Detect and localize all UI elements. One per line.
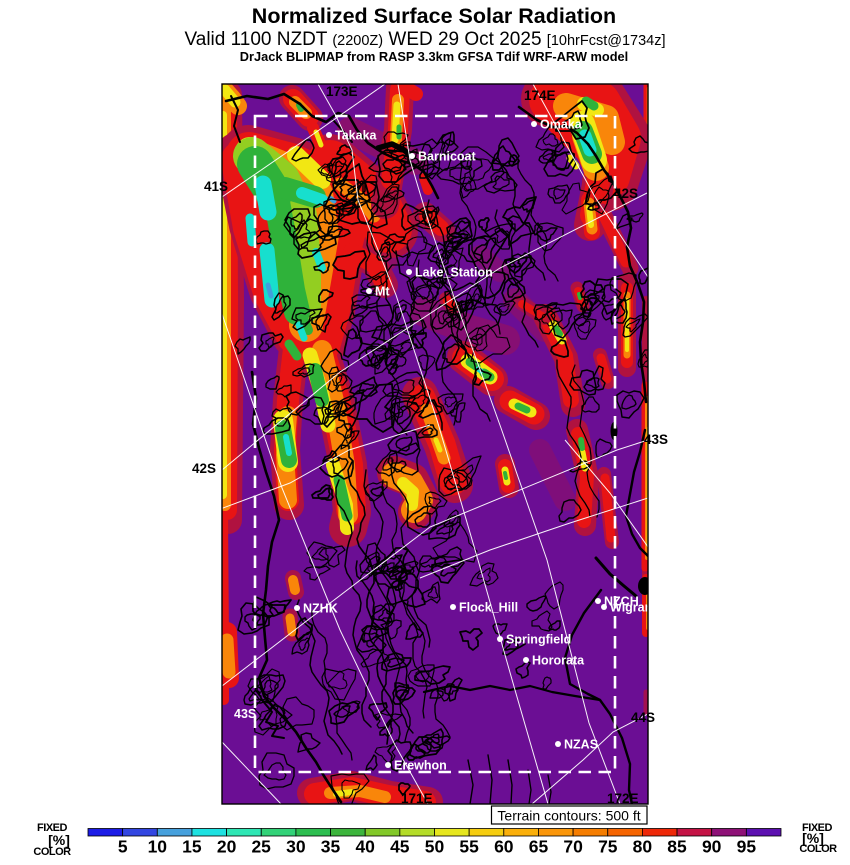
svg-text:25: 25 [251, 837, 271, 857]
svg-text:174E: 174E [524, 88, 556, 103]
svg-text:85: 85 [667, 837, 687, 857]
svg-text:70: 70 [563, 837, 583, 857]
svg-text:Barnicoat: Barnicoat [418, 150, 476, 164]
svg-text:15: 15 [182, 837, 202, 857]
svg-text:Springfield: Springfield [506, 633, 571, 647]
svg-text:30: 30 [286, 837, 306, 857]
svg-text:Omaka: Omaka [540, 118, 583, 132]
svg-text:35: 35 [321, 837, 341, 857]
svg-text:DrJack BLIPMAP from RASP 3.3km: DrJack BLIPMAP from RASP 3.3km GFSA Tdif… [240, 49, 628, 64]
svg-text:40: 40 [355, 837, 375, 857]
svg-text:90: 90 [702, 837, 722, 857]
svg-text:43S: 43S [644, 432, 668, 447]
svg-text:Normalized Surface Solar Radia: Normalized Surface Solar Radiation [252, 4, 616, 28]
svg-text:55: 55 [459, 837, 479, 857]
svg-text:44S: 44S [631, 710, 655, 725]
svg-text:43S: 43S [234, 707, 256, 721]
svg-text:COLOR: COLOR [33, 846, 71, 858]
svg-text:60: 60 [494, 837, 514, 857]
svg-text:COLOR: COLOR [799, 843, 837, 855]
svg-text:42S: 42S [614, 186, 638, 201]
svg-text:Valid 1100 NZDT (2200Z) WED 29: Valid 1100 NZDT (2200Z) WED 29 Oct 2025 … [184, 29, 665, 50]
svg-text:NZAS: NZAS [564, 738, 598, 752]
svg-text:45: 45 [390, 837, 410, 857]
svg-text:42S: 42S [192, 461, 216, 476]
svg-text:Erewhon: Erewhon [394, 759, 447, 773]
svg-text:173E: 173E [326, 84, 358, 99]
svg-text:Lake_Station: Lake_Station [415, 266, 493, 280]
svg-text:Hororata: Hororata [532, 654, 585, 668]
svg-text:171E: 171E [401, 791, 433, 806]
svg-text:Flock_Hill: Flock_Hill [459, 601, 518, 615]
svg-text:80: 80 [633, 837, 653, 857]
svg-text:172E: 172E [607, 791, 639, 806]
svg-text:75: 75 [598, 837, 618, 857]
svg-text:10: 10 [148, 837, 168, 857]
svg-text:95: 95 [737, 837, 757, 857]
svg-text:Takaka: Takaka [335, 129, 378, 143]
svg-text:5: 5 [118, 837, 128, 857]
svg-text:Mt: Mt [375, 285, 390, 299]
svg-text:Terrain contours: 500 ft: Terrain contours: 500 ft [497, 808, 640, 824]
svg-text:50: 50 [425, 837, 445, 857]
svg-text:65: 65 [529, 837, 549, 857]
svg-text:41S: 41S [204, 179, 228, 194]
svg-text:NZHK: NZHK [303, 602, 338, 616]
svg-text:20: 20 [217, 837, 237, 857]
